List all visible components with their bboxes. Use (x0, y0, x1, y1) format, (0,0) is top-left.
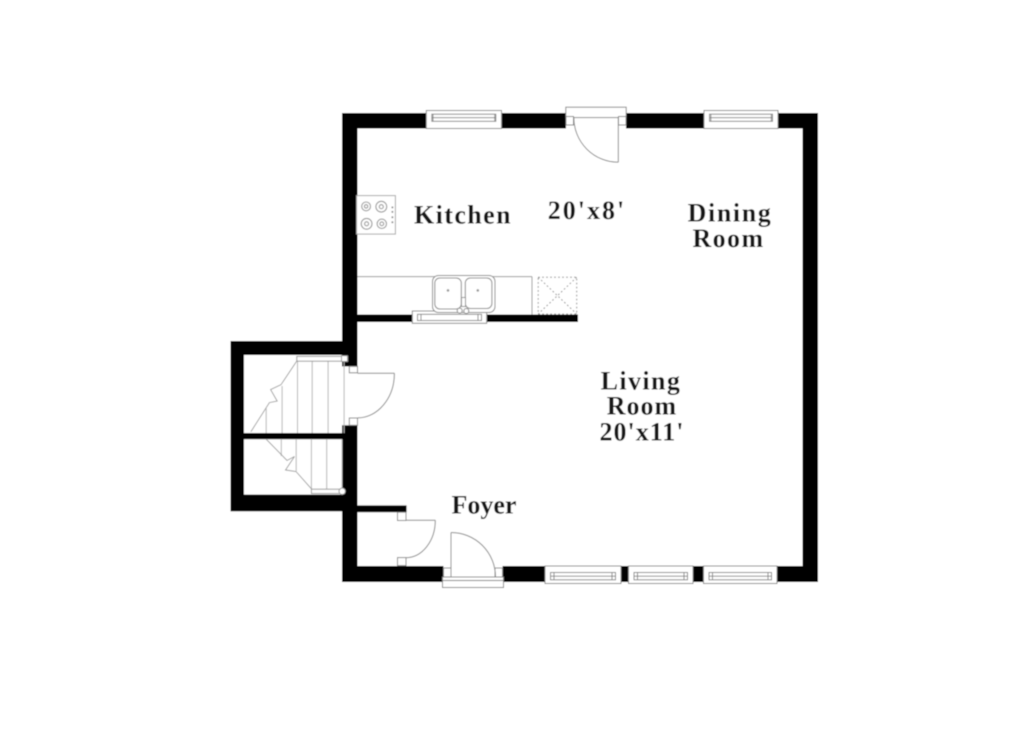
svg-text:Room: Room (607, 392, 677, 421)
svg-text:20'x8': 20'x8' (548, 196, 626, 225)
svg-text:Kitchen: Kitchen (414, 201, 512, 230)
svg-text:Foyer: Foyer (452, 491, 517, 520)
svg-text:Room: Room (692, 224, 764, 253)
svg-text:20'x11': 20'x11' (599, 418, 684, 447)
